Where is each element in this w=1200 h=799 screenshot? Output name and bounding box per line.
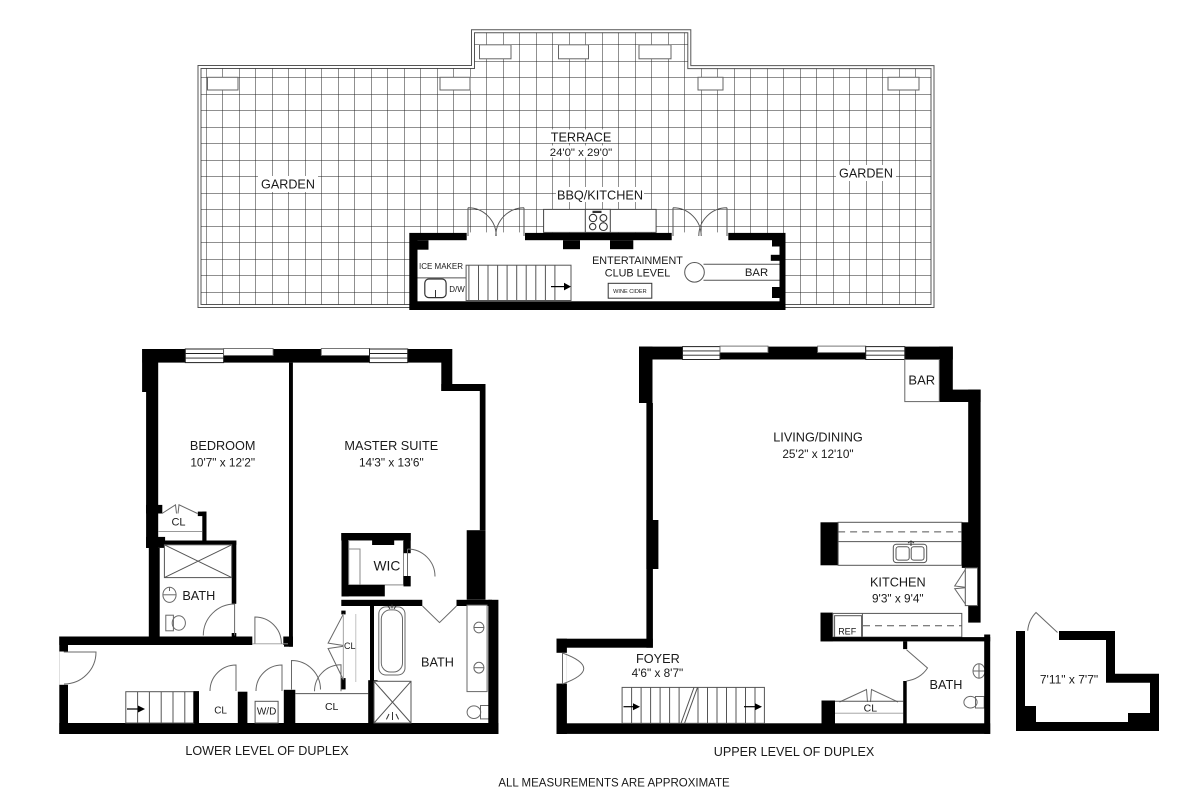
svg-text:D/W: D/W [449, 285, 465, 294]
svg-text:GARDEN: GARDEN [261, 178, 315, 192]
svg-text:14'3" x 13'6": 14'3" x 13'6" [359, 456, 424, 470]
svg-text:CL: CL [171, 517, 185, 529]
svg-text:ENTERTAINMENT: ENTERTAINMENT [592, 255, 683, 267]
svg-text:10'7" x 12'2": 10'7" x 12'2" [190, 456, 255, 470]
svg-text:BBQ/KITCHEN: BBQ/KITCHEN [557, 189, 643, 203]
svg-text:LIVING/DINING: LIVING/DINING [773, 431, 863, 445]
svg-text:REF: REF [838, 627, 857, 637]
svg-text:ALL MEASUREMENTS ARE APPROXIMA: ALL MEASUREMENTS ARE APPROXIMATE [498, 778, 730, 790]
svg-text:25'2" x 12'10": 25'2" x 12'10" [782, 447, 853, 461]
svg-text:LOWER LEVEL OF DUPLEX: LOWER LEVEL OF DUPLEX [185, 744, 349, 758]
svg-text:MASTER SUITE: MASTER SUITE [344, 439, 438, 453]
svg-text:GARDEN: GARDEN [839, 167, 893, 181]
svg-text:24'0" x 29'0": 24'0" x 29'0" [550, 147, 612, 159]
svg-text:CLUB LEVEL: CLUB LEVEL [605, 268, 670, 280]
svg-text:BAR: BAR [745, 267, 768, 279]
svg-text:BATH: BATH [182, 589, 215, 603]
svg-text:BEDROOM: BEDROOM [190, 439, 256, 453]
svg-text:WINE CIDER: WINE CIDER [613, 289, 647, 295]
svg-text:CL: CL [344, 641, 356, 651]
svg-text:FOYER: FOYER [636, 652, 680, 666]
svg-text:CL: CL [325, 701, 339, 713]
svg-text:BATH: BATH [930, 678, 963, 692]
svg-text:CL: CL [214, 706, 227, 717]
svg-text:9'3" x 9'4": 9'3" x 9'4" [872, 592, 924, 606]
svg-text:BAR: BAR [908, 373, 935, 388]
svg-text:TERRACE: TERRACE [551, 131, 612, 145]
svg-text:ICE MAKER: ICE MAKER [419, 262, 463, 271]
svg-text:4'6" x 8'7": 4'6" x 8'7" [632, 666, 684, 680]
svg-text:KITCHEN: KITCHEN [870, 576, 926, 590]
svg-text:BATH: BATH [421, 656, 454, 670]
svg-text:UPPER LEVEL OF DUPLEX: UPPER LEVEL OF DUPLEX [714, 745, 875, 759]
svg-text:CL: CL [864, 703, 878, 715]
svg-text:W/D: W/D [257, 707, 276, 718]
svg-text:7'11" x 7'7": 7'11" x 7'7" [1040, 673, 1098, 687]
svg-text:WIC: WIC [373, 559, 400, 574]
